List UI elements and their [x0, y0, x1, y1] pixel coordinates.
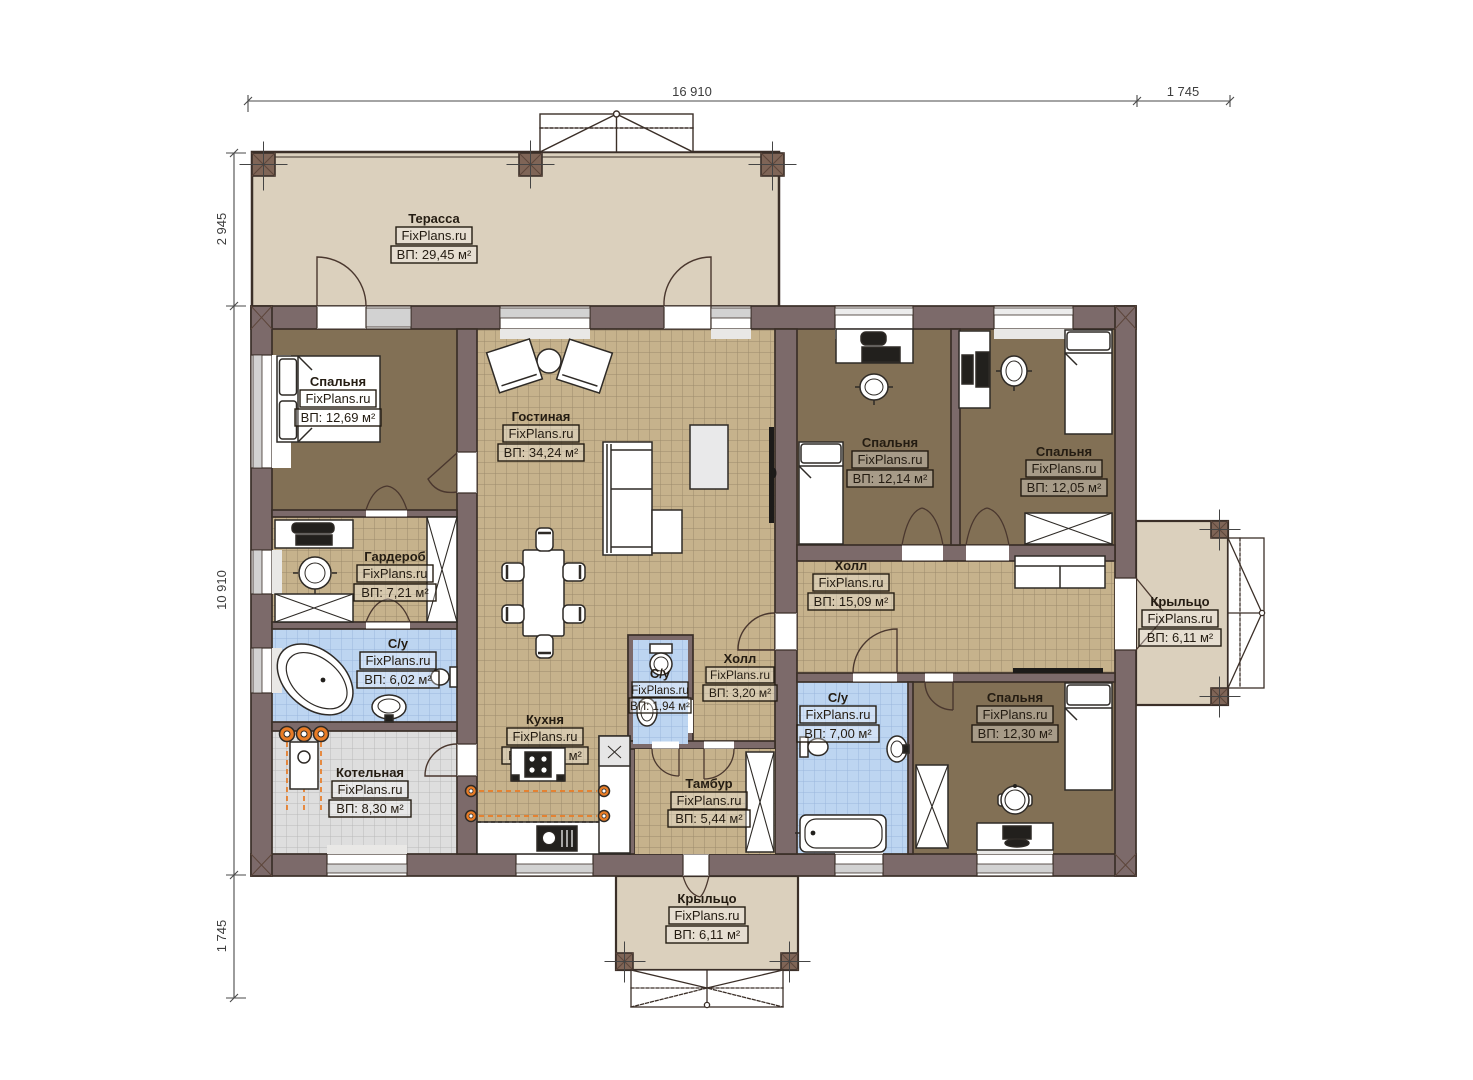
svg-text:Гардероб: Гардероб: [364, 549, 425, 564]
svg-text:FixPlans.ru: FixPlans.ru: [631, 685, 689, 697]
svg-text:ВП: 7,21 м²: ВП: 7,21 м²: [361, 585, 429, 600]
svg-text:Холл: Холл: [835, 558, 868, 573]
svg-text:FixPlans.ru: FixPlans.ru: [401, 228, 466, 243]
svg-text:ВП: 8,30 м²: ВП: 8,30 м²: [336, 801, 404, 816]
svg-text:FixPlans.ru: FixPlans.ru: [305, 391, 370, 406]
svg-text:Крыльцо: Крыльцо: [677, 891, 736, 906]
svg-text:2 945: 2 945: [214, 213, 229, 246]
svg-text:FixPlans.ru: FixPlans.ru: [818, 575, 883, 590]
svg-text:FixPlans.ru: FixPlans.ru: [1031, 461, 1096, 476]
svg-text:ВП: 29,45 м²: ВП: 29,45 м²: [397, 247, 472, 262]
svg-text:FixPlans.ru: FixPlans.ru: [676, 793, 741, 808]
svg-text:ВП: 6,11 м²: ВП: 6,11 м²: [1147, 630, 1214, 645]
svg-text:FixPlans.ru: FixPlans.ru: [982, 707, 1047, 722]
svg-text:Крыльцо: Крыльцо: [1150, 594, 1209, 609]
svg-text:FixPlans.ru: FixPlans.ru: [508, 426, 573, 441]
svg-text:ВП: 12,69 м²: ВП: 12,69 м²: [301, 410, 376, 425]
svg-text:Холл: Холл: [724, 651, 757, 666]
svg-text:FixPlans.ru: FixPlans.ru: [710, 668, 770, 682]
svg-text:Терасса: Терасса: [408, 211, 460, 226]
svg-text:FixPlans.ru: FixPlans.ru: [1147, 611, 1212, 626]
svg-text:FixPlans.ru: FixPlans.ru: [857, 452, 922, 467]
svg-text:Тамбур: Тамбур: [685, 776, 732, 791]
svg-text:FixPlans.ru: FixPlans.ru: [674, 908, 739, 923]
svg-text:ВП: 12,14 м²: ВП: 12,14 м²: [853, 471, 928, 486]
svg-text:Котельная: Котельная: [336, 765, 404, 780]
svg-text:16 910: 16 910: [672, 84, 712, 99]
svg-text:С/у: С/у: [650, 666, 671, 681]
svg-text:С/у: С/у: [828, 690, 849, 705]
svg-text:Гостиная: Гостиная: [512, 409, 571, 424]
svg-text:Спальня: Спальня: [862, 435, 918, 450]
svg-text:FixPlans.ru: FixPlans.ru: [805, 707, 870, 722]
svg-text:Спальня: Спальня: [310, 374, 366, 389]
svg-text:ВП: 1,94 м²: ВП: 1,94 м²: [630, 701, 690, 713]
svg-text:ВП: 34,24 м²: ВП: 34,24 м²: [504, 445, 579, 460]
svg-text:1 745: 1 745: [1167, 84, 1200, 99]
svg-text:ВП: 15,09 м²: ВП: 15,09 м²: [814, 594, 889, 609]
svg-text:10 910: 10 910: [214, 570, 229, 610]
svg-text:FixPlans.ru: FixPlans.ru: [365, 653, 430, 668]
svg-text:ВП: 5,44 м²: ВП: 5,44 м²: [675, 811, 743, 826]
svg-text:Спальня: Спальня: [1036, 444, 1092, 459]
svg-text:Спальня: Спальня: [987, 690, 1043, 705]
svg-text:FixPlans.ru: FixPlans.ru: [362, 566, 427, 581]
svg-text:ВП: 6,02 м²: ВП: 6,02 м²: [364, 672, 432, 687]
svg-text:FixPlans.ru: FixPlans.ru: [512, 729, 577, 744]
svg-text:ВП: 3,20 м²: ВП: 3,20 м²: [709, 686, 771, 700]
svg-text:Кухня: Кухня: [526, 712, 564, 727]
svg-text:FixPlans.ru: FixPlans.ru: [337, 782, 402, 797]
svg-text:1 745: 1 745: [214, 920, 229, 953]
svg-text:ВП: 6,11 м²: ВП: 6,11 м²: [674, 927, 741, 942]
svg-text:ВП: 12,30 м²: ВП: 12,30 м²: [978, 726, 1053, 741]
svg-text:С/у: С/у: [388, 636, 409, 651]
svg-text:ВП: 12,05 м²: ВП: 12,05 м²: [1027, 480, 1102, 495]
svg-text:ВП: 7,00 м²: ВП: 7,00 м²: [804, 726, 872, 741]
